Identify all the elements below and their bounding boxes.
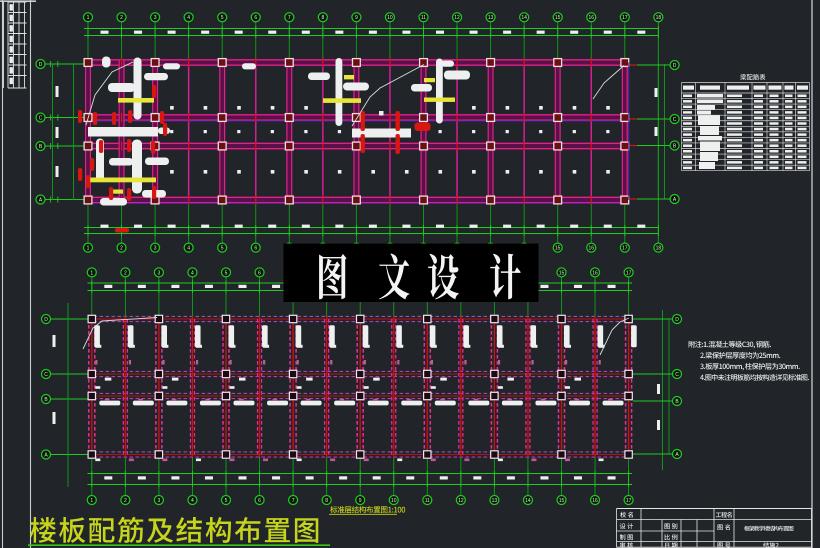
svg-text:2: 2 <box>124 270 127 276</box>
svg-text:11: 11 <box>421 15 426 21</box>
svg-text:5: 5 <box>221 246 224 252</box>
svg-text:3: 3 <box>158 498 161 504</box>
svg-text:15: 15 <box>555 246 561 252</box>
svg-text:9: 9 <box>355 15 358 21</box>
svg-text:14: 14 <box>521 15 527 21</box>
svg-text:15: 15 <box>555 15 561 21</box>
svg-text:1: 1 <box>87 15 90 21</box>
svg-text:16: 16 <box>588 15 594 21</box>
svg-text:7: 7 <box>292 498 295 504</box>
svg-text:13: 13 <box>488 15 494 21</box>
svg-text:C: C <box>673 117 677 123</box>
svg-text:2: 2 <box>120 15 123 21</box>
svg-text:6: 6 <box>254 246 257 252</box>
svg-text:4: 4 <box>187 15 190 21</box>
svg-text:4: 4 <box>191 498 194 504</box>
svg-text:9: 9 <box>359 498 362 504</box>
svg-text:17: 17 <box>626 270 632 276</box>
svg-text:6: 6 <box>258 270 261 276</box>
svg-text:7: 7 <box>288 15 291 21</box>
svg-text:D: D <box>675 317 679 323</box>
svg-text:3: 3 <box>158 270 161 276</box>
svg-text:13: 13 <box>492 498 498 504</box>
svg-text:1: 1 <box>90 270 93 276</box>
svg-text:3: 3 <box>154 246 157 252</box>
svg-text:16: 16 <box>592 270 598 276</box>
svg-text:17: 17 <box>622 15 628 21</box>
svg-text:8: 8 <box>325 498 328 504</box>
svg-text:10: 10 <box>387 15 393 21</box>
svg-text:5: 5 <box>221 15 224 21</box>
svg-text:D: D <box>39 62 43 68</box>
svg-text:1: 1 <box>87 246 90 252</box>
svg-text:16: 16 <box>592 498 598 504</box>
svg-text:18: 18 <box>656 15 662 21</box>
svg-text:11: 11 <box>425 498 430 504</box>
svg-text:C: C <box>44 372 48 378</box>
svg-text:5: 5 <box>225 498 228 504</box>
svg-text:15: 15 <box>559 270 565 276</box>
svg-text:8: 8 <box>321 15 324 21</box>
svg-text:17: 17 <box>626 498 632 504</box>
svg-text:D: D <box>44 317 48 323</box>
svg-text:4: 4 <box>187 246 190 252</box>
svg-text:6: 6 <box>258 498 261 504</box>
svg-text:2: 2 <box>124 498 127 504</box>
svg-text:6: 6 <box>254 15 257 21</box>
svg-text:12: 12 <box>454 15 460 21</box>
svg-text:D: D <box>673 63 677 69</box>
svg-text:16: 16 <box>588 246 594 252</box>
svg-text:C: C <box>675 372 679 378</box>
svg-text:C: C <box>39 115 43 121</box>
svg-text:2: 2 <box>120 246 123 252</box>
svg-text:3: 3 <box>154 15 157 21</box>
svg-text:4: 4 <box>191 270 194 276</box>
svg-text:15: 15 <box>559 498 565 504</box>
svg-text:17: 17 <box>622 246 628 252</box>
svg-text:14: 14 <box>525 498 531 504</box>
svg-text:12: 12 <box>458 498 464 504</box>
svg-text:1: 1 <box>90 498 93 504</box>
svg-text:10: 10 <box>391 498 397 504</box>
svg-text:18: 18 <box>656 246 662 252</box>
svg-text:5: 5 <box>225 270 228 276</box>
